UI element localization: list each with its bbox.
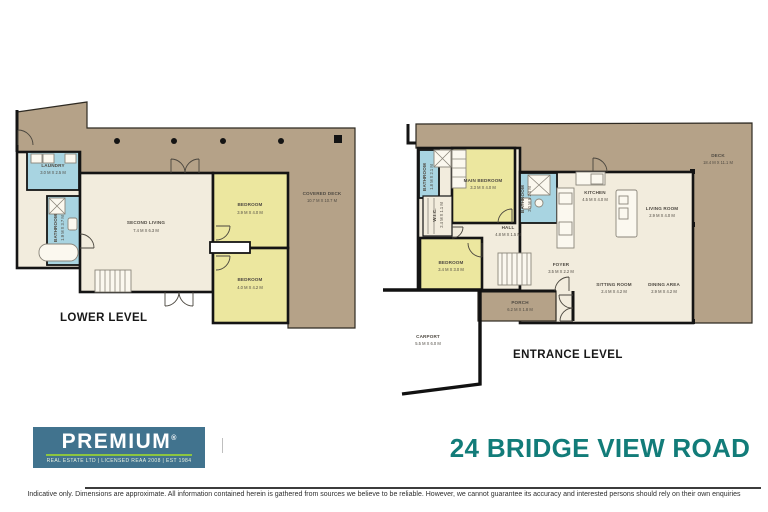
room-dims-second-living: 7.4 M X 6.3 M [133,228,159,233]
room-label-bedroom-2: BEDROOM [237,277,262,282]
room-label-kitchen: KITCHEN [584,190,606,195]
room-label-living-room: LIVING ROOM [646,206,679,211]
room-dims-bedroom-1: 3.9 M X 4.0 M [237,210,263,215]
logo-divider [46,454,192,456]
porch-area [478,291,556,321]
room-label-bathroom-1: BATHROOM [422,163,427,191]
stairs-entrance [498,253,531,285]
bathtub [39,244,78,261]
room-dims-bathroom-2: 2.0 M X 2.0 M [527,186,532,212]
room-label-sitting-room: SITTING ROOM [596,282,632,287]
room-dims-foyer: 3.5 M X 2.2 M [548,269,574,274]
room-label-porch: PORCH [511,300,529,305]
room-label-deck: DECK [711,153,725,158]
room-dims-deck: 18.4 M X 11.1 M [703,160,733,165]
room-dims-kitchen: 4.5 M X 4.0 M [582,197,608,202]
wall [408,124,416,143]
toilet [68,218,77,230]
room-wic [423,196,452,236]
lower-level-label: LOWER LEVEL [60,312,147,324]
entrance-level-floorplan: DECK 18.4 M X 11.1 M MAIN BEDROOM 3.3 M … [383,95,758,405]
room-dims-bedroom: 3.4 M X 3.0 M [438,267,464,272]
room-label-bathroom-2: BATHROOM [520,185,525,213]
room-dims-living-room: 2.9 M X 4.0 M [649,213,675,218]
entrance-level-label: ENTRANCE LEVEL [513,349,623,361]
logo-brand: PREMIUM® [33,431,205,452]
room-dims-carport: 5.5 M X 6.0 M [415,341,441,346]
room-dims-wic: 2.4 M X 1.1 M [439,202,444,228]
kitchen-island [616,190,637,237]
room-label-dining-area: DINING AREA [648,282,680,287]
room-label-laundry: LAUNDRY [41,163,64,168]
room-label-bedroom: BEDROOM [438,260,463,265]
logo-registered-mark: ® [171,435,176,442]
room-label-foyer: FOYER [553,262,570,267]
room-dims-bathroom-1: 1.8 M X 2.1 M [429,164,434,190]
footer-divider [85,487,761,489]
room-dims-bathroom-lower: 1.9 M X 3.7 M [60,215,65,241]
room-label-bathroom-lower: BATHROOM [53,214,58,242]
separator-tick [222,438,223,453]
laundry-appliances [31,154,76,163]
room-dims-bedroom-2: 4.0 M X 4.2 M [237,285,263,290]
floorplan-page: LAUNDRY 3.0 M X 2.5 M BATHROOM 1.9 M X 3… [0,0,768,512]
room-label-carport: CARPORT [416,334,440,339]
lower-level-floorplan: LAUNDRY 3.0 M X 2.5 M BATHROOM 1.9 M X 3… [12,88,372,338]
room-dims-laundry: 3.0 M X 2.5 M [40,170,66,175]
property-address-title: 24 BRIDGE VIEW ROAD [445,433,755,464]
room-dims-hall: 4.8 M X 1.5 M [495,232,521,237]
logo-brand-text: PREMIUM [62,430,172,453]
sink [535,199,543,207]
disclaimer-text: Indicative only. Dimensions are approxim… [0,491,768,498]
room-label-main-bedroom: MAIN BEDROOM [464,178,503,183]
room-label-wic: W.I.C. [432,208,437,221]
shower-icon [49,198,65,214]
room-dims-dining-area: 2.9 M X 4.2 M [651,289,677,294]
room-dims-porch: 6.2 M X 1.8 M [507,307,533,312]
closet [210,242,250,253]
stairs-lower [95,270,131,292]
room-label-bedroom-1: BEDROOM [237,202,262,207]
room-label-covered-deck: COVERED DECK [303,191,342,196]
room-label-second-living: SECOND LIVING [127,220,165,225]
room-dims-covered-deck: 10.7 M X 10.7 M [307,198,338,203]
agency-logo: PREMIUM® REAL ESTATE LTD | LICENSED REAA… [33,427,205,468]
room-dims-main-bedroom: 3.3 M X 4.0 M [470,185,496,190]
room-label-hall: HALL [502,225,515,230]
room-dims-sitting-room: 2.4 M X 4.2 M [601,289,627,294]
logo-tagline: REAL ESTATE LTD | LICENSED REAA 2008 | E… [33,458,205,464]
